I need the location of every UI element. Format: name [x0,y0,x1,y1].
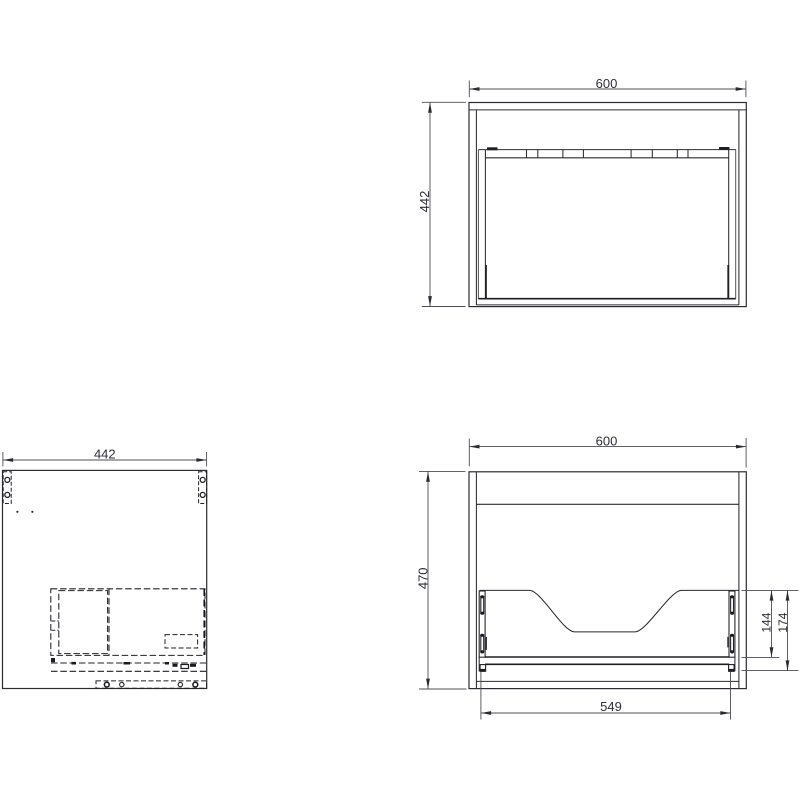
svg-text:174: 174 [776,612,790,632]
svg-text:442: 442 [417,191,432,213]
svg-text:144: 144 [759,612,773,632]
svg-text:470: 470 [415,567,430,589]
svg-text:549: 549 [600,699,622,714]
svg-text:600: 600 [596,433,618,448]
svg-text:600: 600 [596,76,618,91]
svg-text:442: 442 [94,447,116,462]
